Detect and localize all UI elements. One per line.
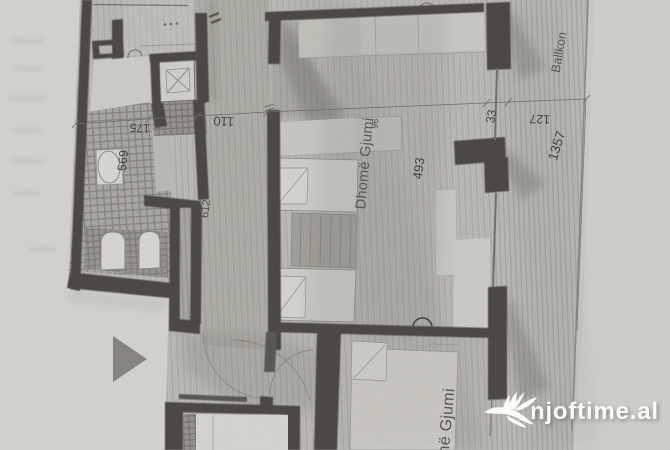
svg-text:njoftime.al: njoftime.al — [530, 398, 659, 425]
